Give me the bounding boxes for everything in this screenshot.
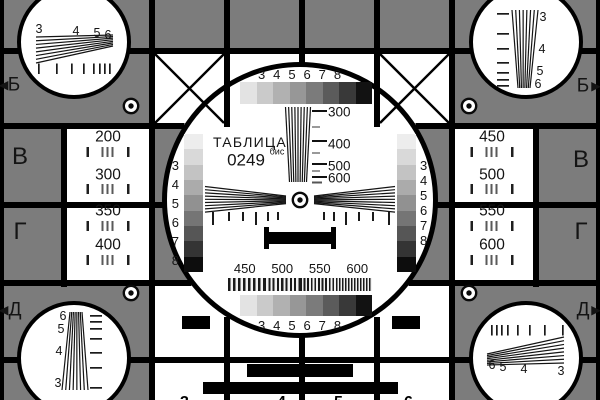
bullseye-dot (128, 290, 133, 295)
tick-mark (511, 221, 514, 231)
top-scale-digits: 345678 (254, 67, 345, 81)
clipped-digit: 5 (333, 0, 346, 4)
wedge-line (292, 107, 294, 182)
tick-mark (127, 221, 130, 231)
corner-digit: 3 (55, 377, 62, 390)
scale-digit: 7 (315, 67, 330, 81)
left-bar-digits: 345678 (157, 156, 179, 270)
tick-mark (497, 85, 509, 87)
tick-mark (90, 315, 102, 317)
corner-digit: 3 (36, 23, 43, 36)
bullseye-dot (466, 103, 471, 108)
tick-mark (102, 147, 104, 157)
scale-digit: 3 (254, 67, 269, 81)
wedge-line (80, 312, 84, 390)
tick-mark (491, 255, 493, 265)
gray-step (184, 226, 203, 241)
wedge-line (79, 312, 81, 390)
tick-mark (99, 64, 101, 75)
wedge-line (527, 10, 531, 88)
tick-mark (501, 325, 503, 336)
bar-digit: 8 (420, 233, 440, 248)
tick-mark (345, 212, 347, 225)
tick-mark (544, 325, 546, 336)
wedge-line (205, 199, 286, 200)
edge-letter: Б (577, 77, 589, 96)
bar-digit: 6 (157, 213, 179, 232)
wedge-line (525, 10, 527, 88)
wedge-line (516, 10, 520, 88)
tick-mark (83, 64, 85, 75)
left-arrow-icon: ◀ (0, 79, 8, 92)
burst-label: 600 (339, 261, 377, 275)
scale-digit: 5 (284, 318, 299, 332)
black-bar (264, 227, 269, 249)
gray-step (356, 295, 373, 316)
tick-mark (471, 147, 474, 157)
tick-mark (517, 325, 519, 336)
tick-mark (486, 255, 488, 265)
tick-mark (104, 64, 106, 75)
tick-mark (471, 221, 474, 231)
tick-mark (312, 170, 320, 172)
gray-step (240, 82, 257, 104)
card-number: 0249 (227, 152, 265, 169)
corner-digit: 6 (489, 359, 496, 372)
scale-digit: 4 (269, 67, 284, 81)
gray-step (397, 149, 416, 164)
tick-mark (312, 176, 327, 178)
wedge-line (36, 46, 113, 63)
tick-mark (56, 64, 58, 75)
right-bar-digits: 345678 (420, 158, 440, 244)
tick-mark (497, 13, 509, 15)
panel-number: 200 (95, 129, 121, 145)
tick-mark (90, 352, 102, 354)
panel-number: 600 (479, 237, 505, 253)
panel-number: 450 (479, 129, 505, 145)
clipped-digit: 4 (277, 395, 290, 400)
corner-digit: 6 (60, 310, 67, 323)
wedge-line (36, 43, 113, 56)
gray-step (240, 295, 257, 316)
black-bar (182, 316, 210, 329)
panel-number: 500 (479, 167, 505, 183)
gray-step (323, 82, 340, 104)
bullseye-dot (128, 103, 133, 108)
bar-digit: 7 (157, 232, 179, 251)
wedge-line (314, 199, 395, 200)
corner-digit: 3 (540, 11, 547, 24)
black-bar (331, 227, 336, 249)
burst-labels: 450500550600 (226, 261, 376, 275)
tick-mark (496, 255, 498, 265)
tick-mark (511, 147, 514, 157)
scale-digit: 5 (284, 67, 299, 81)
gray-step (397, 165, 416, 180)
edge-letter: Б (8, 76, 20, 95)
tick-mark (497, 79, 509, 81)
gray-step (184, 149, 203, 164)
wedge-line (295, 107, 296, 182)
grayscale-step-wedge-top (240, 82, 372, 104)
tick-mark (491, 221, 493, 231)
right-arrow-icon: ▶ (591, 80, 600, 93)
tick-mark (312, 163, 327, 165)
burst-packet (228, 278, 264, 291)
panel-number: 550 (479, 203, 505, 219)
card-number-suffix: бис (270, 148, 285, 157)
bar-digit: 3 (420, 158, 440, 173)
tick-mark (511, 184, 514, 194)
tick-mark (358, 212, 360, 221)
gray-step (397, 195, 416, 210)
gray-step (306, 82, 323, 104)
gray-step (257, 82, 274, 104)
bar-digit: 3 (157, 156, 179, 175)
tick-mark (471, 255, 474, 265)
edge-letter: Д (9, 301, 22, 320)
tick-mark (90, 367, 102, 369)
tick-mark (102, 255, 104, 265)
clipped-digit: 4 (260, 0, 273, 4)
gray-step (356, 82, 373, 104)
tick-mark (90, 321, 102, 323)
gray-step (184, 211, 203, 226)
tick-mark (312, 126, 320, 128)
scale-digit: 8 (330, 67, 345, 81)
wedge-line (512, 10, 518, 88)
wedge-line (487, 344, 564, 357)
wedge-and-tick-shapes (0, 0, 600, 400)
tick-mark (102, 221, 104, 231)
wedge-line (302, 107, 304, 182)
wedge-line (69, 312, 73, 390)
tick-mark (87, 184, 90, 194)
bullseye-dot (297, 197, 302, 202)
gray-step (339, 295, 356, 316)
bar-digit: 5 (420, 188, 440, 203)
freq-label: 300 (328, 105, 351, 119)
clipped-digit: 3 (180, 395, 193, 400)
gray-step (184, 195, 203, 210)
corner-digit: 5 (500, 361, 507, 374)
tick-mark (107, 184, 109, 194)
grayscale-step-wedge-bottom (240, 295, 372, 316)
tick-mark (496, 221, 498, 231)
bottom-scale-digits: 345678 (254, 318, 345, 332)
bar-digit: 5 (157, 194, 179, 213)
tick-mark (277, 212, 279, 220)
tick-mark (312, 110, 327, 112)
gray-step (306, 295, 323, 316)
corner-digit: 3 (558, 365, 565, 378)
burst-packet (300, 278, 336, 291)
gray-step (273, 295, 290, 316)
corner-digit: 5 (537, 65, 544, 78)
gray-step (397, 134, 416, 149)
tick-mark (38, 64, 40, 75)
tick-mark (497, 62, 509, 64)
gray-step (273, 82, 290, 104)
tick-mark (491, 325, 493, 336)
edge-letter: Г (14, 220, 27, 244)
edge-letter: В (573, 148, 589, 172)
tick-mark (107, 221, 109, 231)
gray-step (257, 295, 274, 316)
tick-mark (107, 147, 109, 157)
corner-digit: 5 (94, 27, 101, 40)
tick-mark (93, 64, 95, 75)
black-bar (247, 364, 353, 377)
tick-mark (112, 184, 114, 194)
tick-mark (127, 147, 130, 157)
burst-packet (336, 278, 372, 291)
tick-mark (112, 147, 114, 157)
bar-digit: 4 (157, 175, 179, 194)
gray-step (339, 82, 356, 104)
tick-mark (87, 255, 90, 265)
tick-mark (109, 64, 111, 75)
corner-digit: 6 (535, 78, 542, 91)
wedge-line (73, 312, 75, 390)
gray-step (290, 82, 307, 104)
tick-mark (312, 140, 327, 142)
tick-mark (112, 255, 114, 265)
tick-mark (491, 184, 493, 194)
tick-mark (496, 184, 498, 194)
tick-mark (486, 221, 488, 231)
tick-mark (372, 212, 374, 221)
scale-digit: 6 (300, 318, 315, 332)
freq-label: 400 (328, 137, 351, 151)
wedge-line (519, 10, 521, 88)
gray-step (184, 257, 203, 272)
scale-digit: 4 (269, 318, 284, 332)
gray-step (397, 257, 416, 272)
wedge-line (487, 337, 564, 354)
gray-step (397, 241, 416, 256)
clipped-digit: 3 (183, 0, 196, 4)
burst-label: 450 (226, 261, 264, 275)
panel-number: 350 (95, 203, 121, 219)
gray-step (184, 165, 203, 180)
right-arrow-icon: ▶ (591, 304, 600, 317)
tick-mark (497, 33, 509, 35)
tick-mark (267, 212, 269, 221)
grayscale-step-wedge-left (184, 134, 203, 272)
grayscale-step-wedge-right (397, 134, 416, 272)
tick-mark (323, 212, 325, 220)
tick-mark (87, 221, 90, 231)
tick-mark (102, 184, 104, 194)
corner-digit: 4 (521, 363, 528, 376)
gray-step (397, 211, 416, 226)
black-bar (203, 382, 398, 394)
multiburst-band (228, 278, 372, 291)
tick-mark (486, 184, 488, 194)
tick-mark (562, 325, 564, 336)
tick-mark (90, 338, 102, 340)
clipped-digit: 5 (334, 395, 347, 400)
tick-mark (312, 152, 320, 154)
freq-label: 600 (328, 171, 351, 185)
edge-letter: В (12, 145, 28, 169)
tick-mark (228, 212, 230, 221)
tick-mark (127, 255, 130, 265)
corner-digit: 4 (539, 43, 546, 56)
gray-step (184, 180, 203, 195)
burst-packet (264, 278, 300, 291)
bullseye-dot (466, 290, 471, 295)
corner-digit: 6 (105, 29, 112, 42)
tick-mark (87, 147, 90, 157)
tv-test-card-0249: ТАБЛИЦА 0249 бис 345678 345678 345678 34… (0, 0, 600, 400)
black-bar (392, 316, 420, 329)
tick-mark (107, 255, 109, 265)
burst-label: 550 (301, 261, 339, 275)
gray-step (397, 180, 416, 195)
tick-mark (242, 212, 244, 221)
tick-mark (496, 325, 498, 336)
wedge-line (300, 107, 301, 182)
tick-mark (471, 184, 474, 194)
tick-mark (312, 182, 322, 184)
tick-mark (529, 325, 531, 336)
gray-step (184, 241, 203, 256)
scale-digit: 7 (315, 318, 330, 332)
bar-digit: 7 (420, 218, 440, 233)
tick-mark (112, 221, 114, 231)
edge-letter: Г (575, 220, 588, 244)
scale-digit: 8 (330, 318, 345, 332)
tick-mark (388, 212, 390, 225)
gray-step (290, 295, 307, 316)
left-arrow-icon: ◀ (0, 304, 8, 317)
tick-mark (255, 212, 257, 225)
bar-digit: 8 (157, 251, 179, 270)
tick-mark (127, 184, 130, 194)
scale-digit: 3 (254, 318, 269, 332)
tick-mark (71, 64, 73, 75)
tick-mark (507, 325, 509, 336)
bar-digit: 6 (420, 203, 440, 218)
tick-mark (90, 387, 102, 389)
black-bar (267, 232, 333, 244)
corner-digit: 4 (73, 25, 80, 38)
corner-digit: 4 (56, 345, 63, 358)
burst-label: 500 (264, 261, 302, 275)
clipped-digit: 6 (408, 0, 421, 4)
clipped-digit: 6 (404, 395, 417, 400)
tick-mark (491, 147, 493, 157)
gray-step (323, 295, 340, 316)
corner-digit: 5 (58, 323, 65, 336)
tick-mark (497, 48, 509, 50)
bar-digit: 4 (420, 173, 440, 188)
tick-mark (333, 212, 335, 221)
tick-mark (497, 72, 509, 74)
wedge-line (82, 312, 88, 390)
tick-mark (90, 328, 102, 330)
gray-step (184, 134, 203, 149)
gray-step (397, 226, 416, 241)
panel-number: 400 (95, 237, 121, 253)
tick-mark (511, 255, 514, 265)
edge-letter: Д (577, 301, 590, 320)
tick-mark (496, 147, 498, 157)
scale-digit: 6 (300, 67, 315, 81)
panel-number: 300 (95, 167, 121, 183)
tick-mark (486, 147, 488, 157)
tick-mark (212, 212, 214, 225)
